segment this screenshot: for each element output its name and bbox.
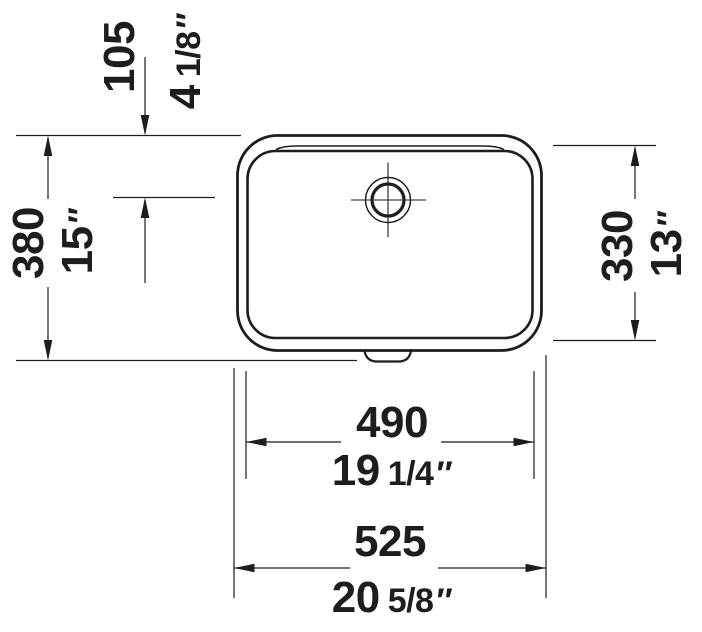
basin-outline [238, 136, 542, 362]
dim-inner-width: 490 191/4″ [246, 371, 534, 495]
arrowhead [234, 564, 255, 573]
basin-inner-rim [248, 151, 533, 338]
dim-label-mm: 105 [95, 21, 144, 93]
basin-technical-drawing: 105 41/8″ 380 15″ 330 13″ [0, 0, 702, 632]
arrowhead [246, 438, 267, 447]
overflow-hole [351, 163, 426, 238]
dim-inner-depth: 330 13″ [553, 146, 691, 341]
dim-hole-offset: 105 41/8″ [95, 13, 215, 283]
dim-label-inch: 13″ [642, 210, 691, 277]
basin-back-ledge-line [276, 146, 504, 150]
drawing-canvas: 105 41/8″ 380 15″ 330 13″ [0, 0, 702, 632]
dim-label-inch: 191/4″ [332, 446, 453, 495]
arrowhead [141, 115, 150, 136]
dim-label-mm: 330 [593, 210, 642, 282]
dim-label-mm: 525 [354, 517, 426, 566]
arrowhead [44, 340, 53, 361]
dim-label-mm: 490 [356, 398, 428, 447]
arrowhead [631, 146, 640, 167]
arrowhead [631, 320, 640, 341]
dim-overall-depth: 380 15″ [4, 136, 357, 361]
arrowhead [514, 438, 535, 447]
arrowhead [44, 136, 53, 157]
dim-label-inch: 205/8″ [332, 573, 453, 622]
arrowhead [526, 564, 547, 573]
basin-outer-rim [238, 136, 542, 351]
dim-label-inch: 41/8″ [161, 13, 210, 110]
drain-tab [365, 351, 412, 362]
arrowhead [141, 198, 150, 219]
dim-label-inch: 15″ [53, 207, 102, 274]
dim-label-mm: 380 [4, 207, 53, 279]
